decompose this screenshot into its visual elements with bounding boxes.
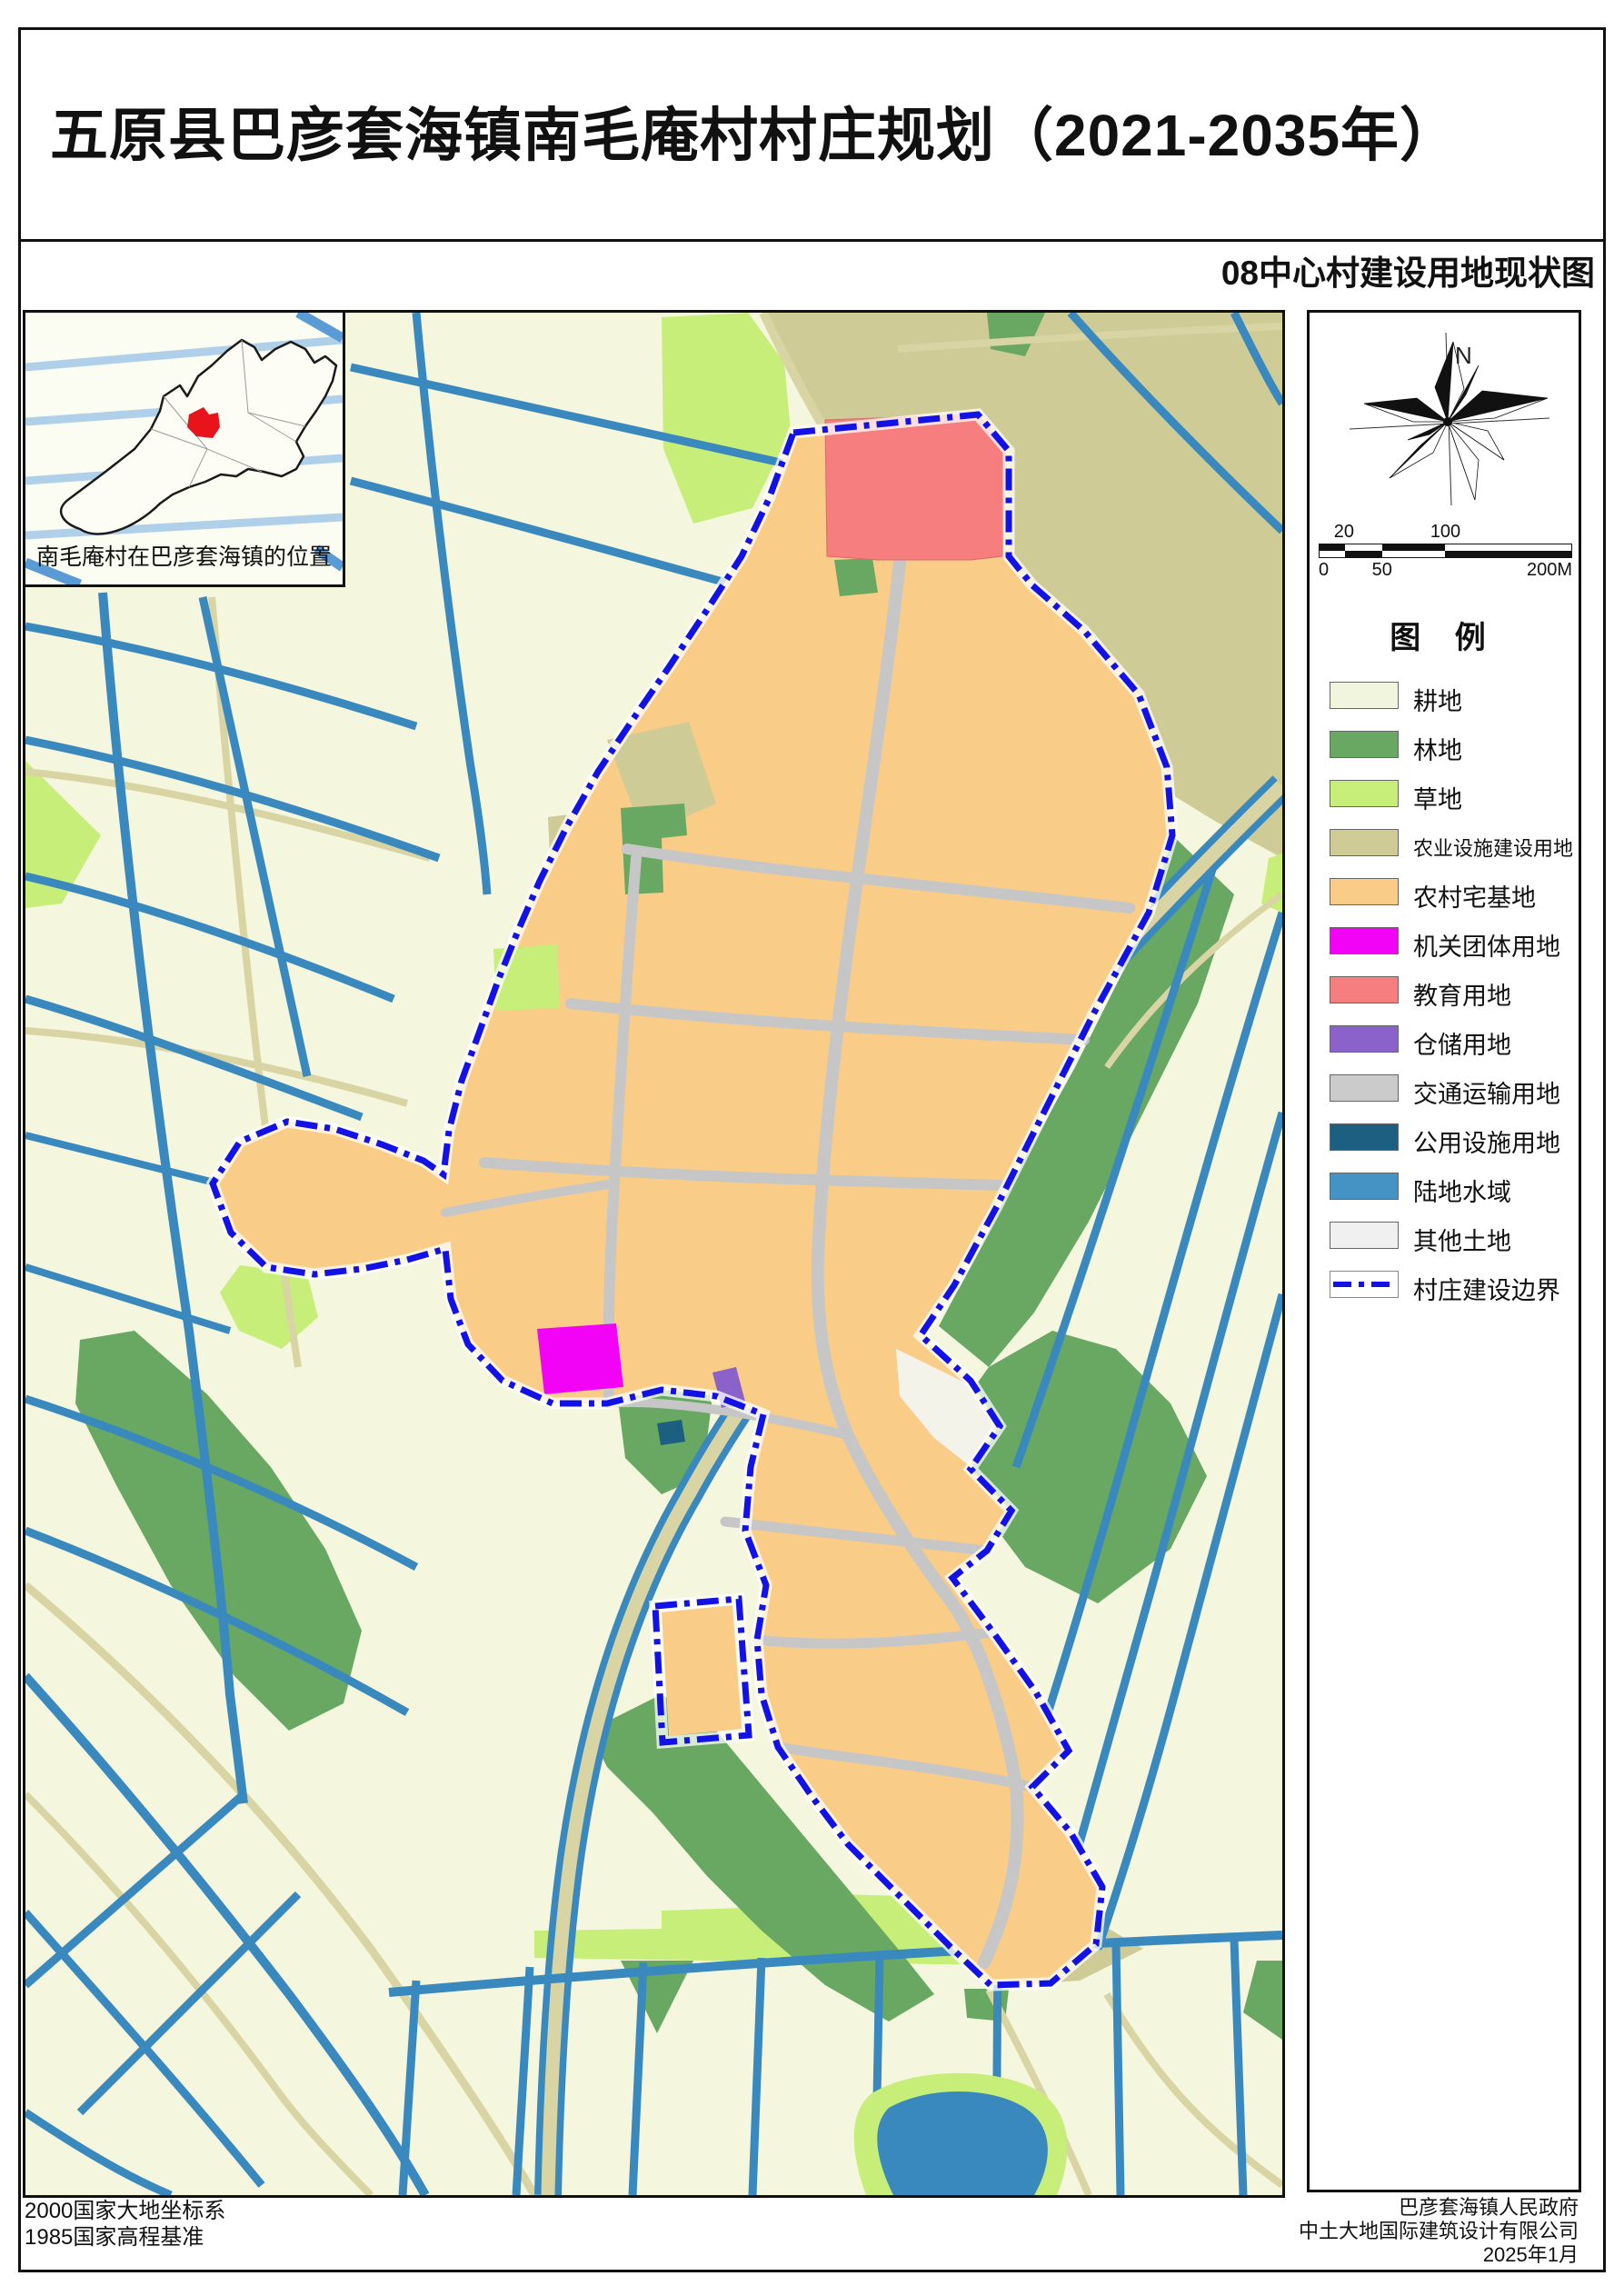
legend-label: 公用设施用地 bbox=[1413, 1123, 1560, 1159]
inset-location-map: 南毛庵村在巴彦套海镇的位置 bbox=[23, 310, 345, 587]
scale-bar-strip bbox=[1319, 544, 1572, 558]
credit-line-2: 中土大地国际建筑设计有限公司 bbox=[1299, 2220, 1579, 2243]
legend-item: 公用设施用地 bbox=[1330, 1114, 1566, 1163]
legend-swatch bbox=[1330, 1222, 1399, 1249]
legend-title: 图 例 bbox=[1310, 613, 1579, 657]
legend-label: 耕地 bbox=[1413, 682, 1462, 717]
legend-item: 陆地水域 bbox=[1330, 1163, 1566, 1213]
credit-line-3: 2025年1月 bbox=[1299, 2243, 1579, 2267]
legend-item: 仓储用地 bbox=[1330, 1016, 1566, 1065]
legend-item: 村庄建设边界 bbox=[1330, 1262, 1566, 1311]
legend-label: 机关团体用地 bbox=[1413, 927, 1560, 963]
scale-label-20: 20 bbox=[1334, 522, 1354, 543]
education-parcel bbox=[825, 414, 1005, 560]
homestead-detached bbox=[662, 1605, 742, 1736]
legend-swatch bbox=[1330, 1271, 1399, 1298]
legend-label: 村庄建设边界 bbox=[1413, 1271, 1560, 1306]
north-label: N bbox=[1455, 342, 1472, 370]
compass-rose bbox=[1337, 313, 1559, 531]
boundary-line-sample bbox=[1333, 1282, 1395, 1287]
legend-swatch bbox=[1330, 780, 1399, 807]
legend-item: 耕地 bbox=[1330, 673, 1566, 722]
legend-item: 其他土地 bbox=[1330, 1213, 1566, 1262]
legend-label: 林地 bbox=[1413, 731, 1462, 766]
legend-swatch bbox=[1330, 731, 1399, 758]
legend-swatch bbox=[1330, 878, 1399, 905]
pond bbox=[854, 2073, 1068, 2195]
main-map bbox=[23, 310, 1285, 2198]
legend-label: 农村宅基地 bbox=[1413, 878, 1536, 913]
legend-swatch bbox=[1330, 1074, 1399, 1102]
legend-item: 机关团体用地 bbox=[1330, 918, 1566, 967]
sheet-subtitle: 08中心村建设用地现状图 bbox=[1221, 245, 1595, 294]
credits-note: 巴彦套海镇人民政府 中土大地国际建筑设计有限公司 2025年1月 bbox=[1299, 2196, 1579, 2267]
government-parcel bbox=[537, 1323, 623, 1394]
map-canvas bbox=[25, 313, 1282, 2195]
scale-label-50: 50 bbox=[1372, 560, 1392, 581]
page-title: 五原县巴彦套海镇南毛庵村村庄规划（2021-2035年） bbox=[50, 89, 1459, 173]
datum-line-1: 2000国家大地坐标系 bbox=[25, 2198, 225, 2224]
legend-item: 教育用地 bbox=[1330, 967, 1566, 1016]
scale-label-0: 0 bbox=[1319, 560, 1329, 581]
legend-label: 仓储用地 bbox=[1413, 1025, 1511, 1061]
legend-label: 其他土地 bbox=[1413, 1222, 1511, 1257]
legend-item: 林地 bbox=[1330, 722, 1566, 771]
legend-item: 农村宅基地 bbox=[1330, 869, 1566, 918]
legend-label: 农业设施建设用地 bbox=[1413, 833, 1573, 862]
legend-swatch bbox=[1330, 829, 1399, 856]
datum-note: 2000国家大地坐标系 1985国家高程基准 bbox=[25, 2198, 225, 2251]
scale-label-200m: 200M bbox=[1527, 560, 1572, 581]
scale-label-100: 100 bbox=[1430, 522, 1460, 543]
legend-item: 农业设施建设用地 bbox=[1330, 820, 1566, 869]
public-utility-parcel bbox=[657, 1420, 685, 1445]
legend-swatch bbox=[1330, 927, 1399, 954]
inset-caption: 南毛庵村在巴彦套海镇的位置 bbox=[25, 539, 343, 572]
legend-swatch bbox=[1330, 976, 1399, 1003]
legend-label: 教育用地 bbox=[1413, 976, 1511, 1012]
legend-swatch bbox=[1330, 1123, 1399, 1151]
map-side-panel: N 20 100 0 50 200M 图 例 bbox=[1307, 310, 1581, 2192]
legend-swatch bbox=[1330, 1173, 1399, 1200]
legend-swatch bbox=[1330, 682, 1399, 709]
legend-list: 耕地 林地 草地 农业设施建设用地 农村宅基地 机关团体用地 教育用地 bbox=[1330, 673, 1566, 1311]
legend-item: 交通运输用地 bbox=[1330, 1065, 1566, 1114]
credit-line-1: 巴彦套海镇人民政府 bbox=[1299, 2196, 1579, 2220]
legend-label: 陆地水域 bbox=[1413, 1173, 1511, 1208]
legend-swatch bbox=[1330, 1025, 1399, 1053]
scale-bar: 20 100 0 50 200M bbox=[1319, 522, 1572, 576]
legend-label: 交通运输用地 bbox=[1413, 1074, 1560, 1110]
title-divider bbox=[18, 239, 1606, 242]
legend-item: 草地 bbox=[1330, 771, 1566, 820]
datum-line-2: 1985国家高程基准 bbox=[25, 2224, 225, 2251]
legend-label: 草地 bbox=[1413, 780, 1462, 815]
